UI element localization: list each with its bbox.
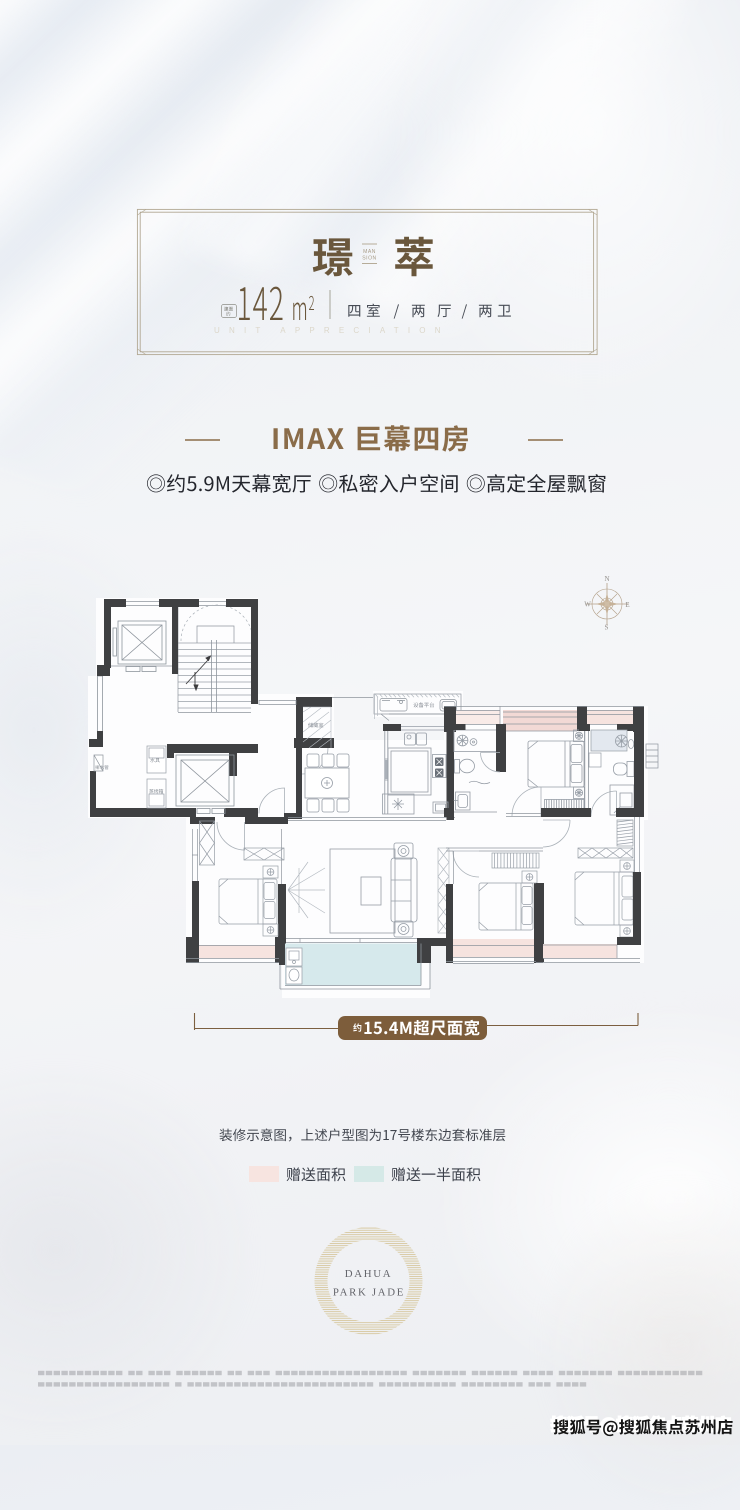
svg-text:UNIT APPRECIATION: UNIT APPRECIATION bbox=[214, 326, 450, 335]
svg-text:PARK JADE: PARK JADE bbox=[333, 1287, 405, 1299]
svg-text:MAN: MAN bbox=[363, 249, 376, 255]
svg-text:DAHUA: DAHUA bbox=[345, 1268, 393, 1280]
svg-text:W: W bbox=[584, 601, 591, 609]
svg-text:S: S bbox=[605, 624, 609, 632]
svg-text:N: N bbox=[604, 575, 609, 583]
svg-text:E: E bbox=[625, 601, 629, 609]
svg-text:SION: SION bbox=[362, 256, 376, 262]
